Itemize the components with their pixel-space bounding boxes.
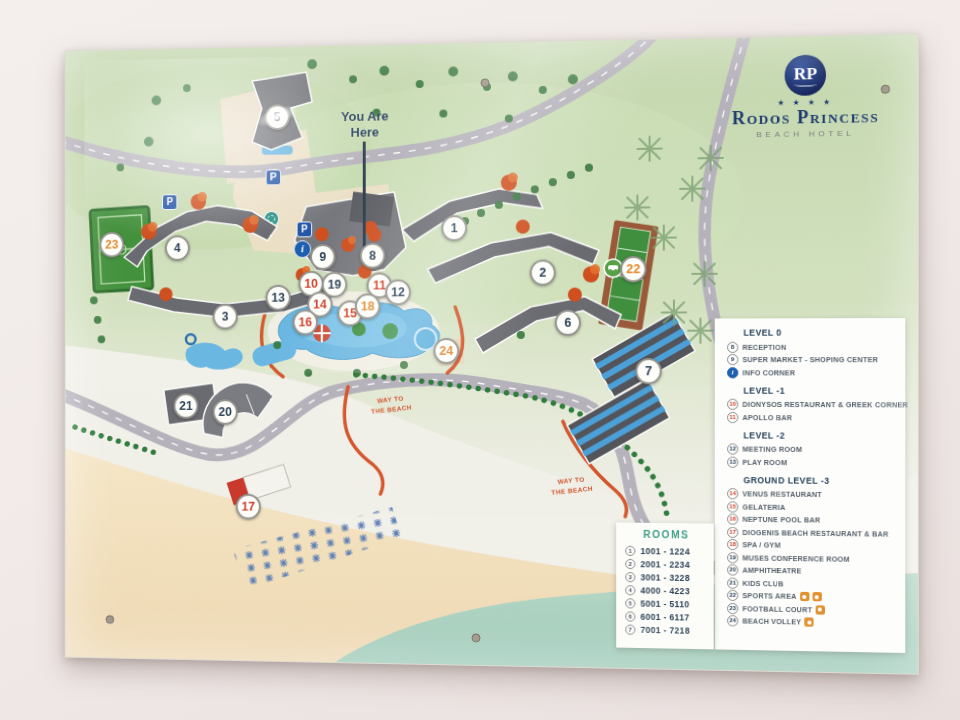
- legend-number: 22: [727, 590, 738, 601]
- rooms-item: 44000 - 4223: [625, 583, 707, 597]
- map-marker-7: 7: [635, 358, 661, 384]
- legend-item: 8RECEPTION: [727, 341, 897, 354]
- map-marker-1: 1: [441, 215, 467, 241]
- rooms-number: 5: [625, 598, 635, 608]
- football-icon: [815, 605, 824, 614]
- map-marker-17: 17: [236, 494, 261, 520]
- legend-number: 12: [727, 444, 738, 455]
- legend-section-title: LEVEL -2: [743, 430, 896, 441]
- rooms-number: 6: [625, 611, 635, 621]
- legend-number: 11: [727, 412, 738, 423]
- legend-number: 16: [727, 514, 738, 525]
- legend-number: 13: [727, 456, 738, 467]
- map-marker-12: 12: [385, 279, 411, 305]
- rooms-item: 55001 - 5110: [625, 596, 707, 610]
- rooms-item: 22001 - 2234: [625, 557, 707, 571]
- resort-map-panel: You Are Here WAY TO THE BEACH WAY TO THE…: [65, 33, 919, 675]
- legend-number: 20: [727, 565, 738, 576]
- legend-section-title: GROUND LEVEL -3: [743, 475, 896, 486]
- legend-number: 23: [727, 603, 738, 614]
- legend-number: 15: [727, 501, 738, 512]
- legend-card: LEVEL 0 8RECEPTION 9SUPER MARKET - SHOPI…: [715, 318, 905, 653]
- legend-item: 13PLAY ROOM: [727, 456, 897, 470]
- way-to-beach-label: WAY TO THE BEACH: [550, 474, 594, 498]
- map-marker-2: 2: [530, 260, 556, 286]
- volleyball-icon: [805, 618, 814, 627]
- rooms-number: 2: [625, 558, 635, 568]
- sports-icon: [800, 592, 809, 601]
- legend-number: 17: [727, 526, 738, 537]
- map-marker-8: 8: [360, 243, 385, 269]
- map-marker-6: 6: [555, 310, 581, 336]
- legend-number: 24: [727, 615, 738, 626]
- map-marker-9: 9: [310, 244, 335, 270]
- legend-item: iINFO CORNER: [727, 366, 897, 379]
- legend-item: 24BEACH VOLLEY: [727, 615, 897, 631]
- legend-number: 9: [727, 354, 738, 365]
- map-marker-20: 20: [213, 399, 238, 425]
- hotel-name: Rodos Princess: [700, 106, 911, 128]
- map-marker-24: 24: [433, 338, 459, 364]
- parking-icon: P: [162, 194, 177, 210]
- rooms-title: ROOMS: [625, 529, 707, 541]
- legend-item: 9SUPER MARKET - SHOPING CENTER: [727, 353, 897, 366]
- legend-number: 21: [727, 577, 738, 588]
- map-marker-23: 23: [100, 232, 125, 258]
- rooms-number: 7: [625, 624, 635, 634]
- map-marker-19: 19: [322, 272, 347, 298]
- rooms-card: ROOMS 11001 - 1224 22001 - 2234 33001 - …: [616, 522, 714, 649]
- hotel-logo: RP ★ ★ ★ ★ Rodos Princess BEACH HOTEL: [700, 53, 911, 140]
- legend-number: 14: [727, 488, 738, 499]
- info-corner-icon: i: [727, 367, 738, 378]
- legend-number: 8: [727, 342, 738, 353]
- rooms-item: 77001 - 7218: [625, 622, 707, 637]
- map-marker-3: 3: [213, 304, 238, 330]
- parking-icon: P: [297, 221, 313, 237]
- map-marker-16: 16: [293, 309, 318, 335]
- map-marker-21: 21: [174, 393, 199, 419]
- map-marker-13: 13: [266, 285, 291, 311]
- legend-number: 10: [727, 399, 738, 410]
- you-are-here-pointer: [363, 142, 365, 249]
- info-corner-icon: i: [294, 240, 311, 258]
- way-to-beach-label: WAY TO THE BEACH: [370, 393, 413, 416]
- rooms-number: 3: [625, 572, 635, 582]
- legend-item: 12MEETING ROOM: [727, 443, 897, 457]
- sports-icon: [812, 592, 821, 601]
- legend-number: 19: [727, 552, 738, 563]
- parking-icon: P: [266, 169, 281, 185]
- map-marker-18: 18: [355, 293, 380, 319]
- legend-number: 18: [727, 539, 738, 550]
- legend-section-title: LEVEL 0: [743, 327, 896, 337]
- legend-item: 11APOLLO BAR: [727, 411, 897, 424]
- you-are-here-label: You Are Here: [306, 108, 423, 142]
- logo-monogram: RP: [785, 54, 826, 96]
- rooms-item: 33001 - 3228: [625, 570, 707, 584]
- rooms-number: 4: [625, 585, 635, 595]
- legend-section-title: LEVEL -1: [743, 385, 896, 396]
- legend-item: 10DIONYSOS RESTAURANT & GREEK CORNER: [727, 398, 897, 411]
- map-marker-22: 22: [620, 256, 646, 282]
- rooms-item: 11001 - 1224: [625, 544, 707, 558]
- map-marker-4: 4: [165, 235, 190, 261]
- rooms-number: 1: [625, 545, 635, 555]
